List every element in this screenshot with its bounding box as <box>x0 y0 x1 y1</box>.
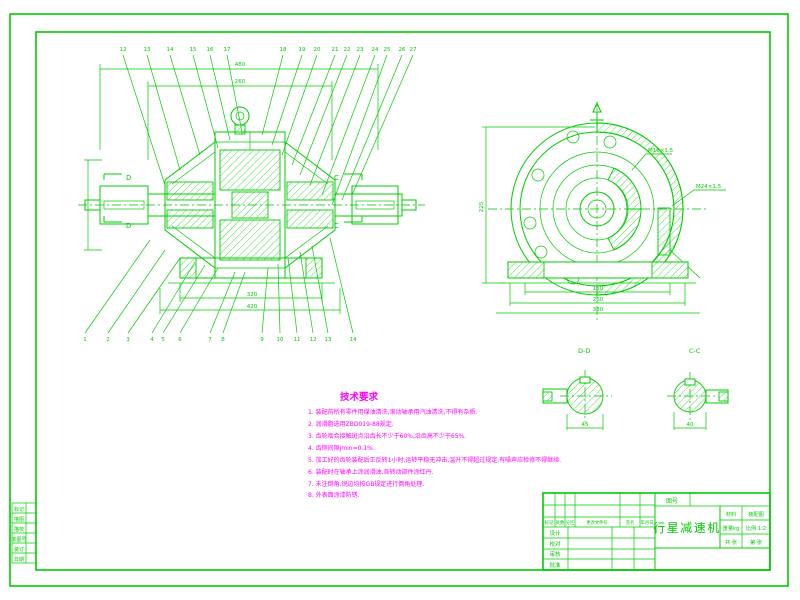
balloon-number: 27 <box>410 47 417 53</box>
section-mark-d-bottom: D <box>126 222 131 230</box>
section-view-main <box>78 107 425 283</box>
dim-front-b2: 260 <box>593 297 604 303</box>
tech-req-line: 7. 未注倒角,锐边均按GB规定进行倒角处理. <box>308 480 424 488</box>
balloon-number: 14 <box>350 337 357 343</box>
tb-row-approve: 批准 <box>549 561 561 569</box>
margin-table: 标记 描图 描校 底图号 装订 日期 <box>11 503 36 563</box>
tb-material-label: 材料 <box>726 510 736 518</box>
tb-header-count: 处数 <box>556 519 565 526</box>
tb-header-docno: 更改文件号 <box>586 519 607 526</box>
tech-req-line: 4. 齿侧间隙jmin=0.1%. <box>308 444 375 452</box>
balloon-number: 23 <box>357 47 364 53</box>
balloon-number: 22 <box>344 47 351 53</box>
balloon-number: 3 <box>126 337 130 343</box>
balloon-number: 4 <box>150 337 154 343</box>
tech-req-line: 2. 润滑脂选用ZBD019-88规定. <box>308 420 394 428</box>
drawing-canvas: 标记 描图 描校 底图号 装订 日期 <box>0 0 800 600</box>
balloon-number: 6 <box>178 337 182 343</box>
thread-callout-1: M16×1.5 <box>648 148 674 154</box>
balloon-number: 11 <box>294 337 301 343</box>
balloon-number: 2 <box>106 337 110 343</box>
balloon-number: 1 <box>83 337 87 343</box>
tech-req-line: 5. 加工好的齿轮装配后正反转1小时,运转平稳无冲击,温升不得超过规定,有噪声应… <box>308 456 561 464</box>
title-block: 标记 处数 分区 更改文件号 签名 年月日 设计 校对 审核 批准 图号 行星减… <box>543 493 770 570</box>
cad-drawing-sheet: 标记 描图 描校 底图号 装订 日期 <box>0 0 800 600</box>
balloon-number: 18 <box>280 47 287 53</box>
balloon-number: 17 <box>224 47 231 53</box>
dim-front-height: 225 <box>479 201 485 212</box>
margin-row-label: 标记 <box>14 506 24 513</box>
balloon-number: 12 <box>120 47 127 53</box>
tb-row-audit: 审核 <box>549 550 561 558</box>
balloon-number: 15 <box>190 47 197 53</box>
balloon-number: 13 <box>144 47 151 53</box>
section-mark-d-top: D <box>126 174 131 182</box>
tb-header-zone: 分区 <box>566 519 575 526</box>
tb-part-name: 行星减速机 <box>653 521 721 535</box>
tb-scale-value: 比例 1:2 <box>746 524 766 532</box>
margin-row-label: 描校 <box>14 526 24 533</box>
balloon-number: 24 <box>372 47 379 53</box>
balloon-number: 14 <box>167 47 174 53</box>
tb-header-mark: 标记 <box>545 519 554 526</box>
balloon-number: 16 <box>207 47 214 53</box>
tech-req-line: 8. 外表面涂漆防锈. <box>308 491 360 499</box>
margin-row-label: 装订 <box>14 546 24 553</box>
tb-sheet-no: 第 张 <box>750 538 763 546</box>
dim-overall-length: 480 <box>235 62 246 68</box>
margin-row-label: 描图 <box>14 516 24 523</box>
tb-weight-label: 重量kg <box>723 524 740 532</box>
dim-front-b3: 330 <box>593 307 604 313</box>
dim-front-b1: 150 <box>593 286 604 292</box>
balloon-number: 5 <box>161 337 165 343</box>
dim-base-width2: 420 <box>247 304 258 310</box>
front-view: M16×1.5 M24×1.5 <box>488 102 726 320</box>
balloon-number: 9 <box>260 337 264 343</box>
tb-row-check: 校对 <box>549 540 561 548</box>
balloon-number: 19 <box>299 47 306 53</box>
margin-row-label: 底图号 <box>11 536 26 543</box>
balloon-number: 8 <box>221 337 225 343</box>
section-dd-view: D-D 45 <box>543 347 612 430</box>
balloon-number: 10 <box>277 337 284 343</box>
tech-req-line: 1. 装配前所有零件用煤油清洗,滚动轴承用汽油清洗,不得有杂质. <box>308 408 477 416</box>
balloon-number: 13 <box>325 337 332 343</box>
section-cc-view: C-C 40 <box>667 347 728 430</box>
balloon-number: 26 <box>399 47 406 53</box>
tb-drawing-no-label: 图号 <box>666 498 678 505</box>
thread-callout-2: M24×1.5 <box>696 184 722 190</box>
tech-req-line: 6. 装配时在轴承上涂润滑油,各转动部件涂红丹. <box>308 468 434 476</box>
section-mark-c-top: C <box>334 174 339 182</box>
tech-req-title: 技术要求 <box>340 391 379 403</box>
tb-row-design: 设计 <box>549 529 561 537</box>
balloon-number: 25 <box>384 47 391 53</box>
section-mark-c-bottom: C <box>334 222 339 230</box>
dim-cc: 40 <box>687 422 694 428</box>
balloon-number: 21 <box>332 47 339 53</box>
dim-dd: 45 <box>582 422 589 428</box>
section-dd-label: D-D <box>578 347 590 355</box>
technical-requirements: 技术要求 1. 装配前所有零件用煤油清洗,滚动轴承用汽油清洗,不得有杂质. 2.… <box>308 391 561 499</box>
balloon-number: 7 <box>208 337 212 343</box>
section-cc-label: C-C <box>689 347 701 355</box>
tb-material-value: 装配图 <box>748 510 764 518</box>
margin-row-label: 日期 <box>14 557 24 563</box>
dim-base-width: 320 <box>247 292 258 298</box>
balloon-number: 20 <box>314 47 321 53</box>
tb-sheets-total: 共 张 <box>725 538 738 546</box>
tb-header-sign: 签名 <box>626 519 635 526</box>
tb-header-date: 年月日 <box>641 519 654 526</box>
balloon-number: 12 <box>310 337 317 343</box>
dim-inner-length: 260 <box>235 79 246 85</box>
tech-req-line: 3. 齿轮啮合接触斑点沿齿长不少于60%,沿齿高不少于65%. <box>308 432 466 440</box>
